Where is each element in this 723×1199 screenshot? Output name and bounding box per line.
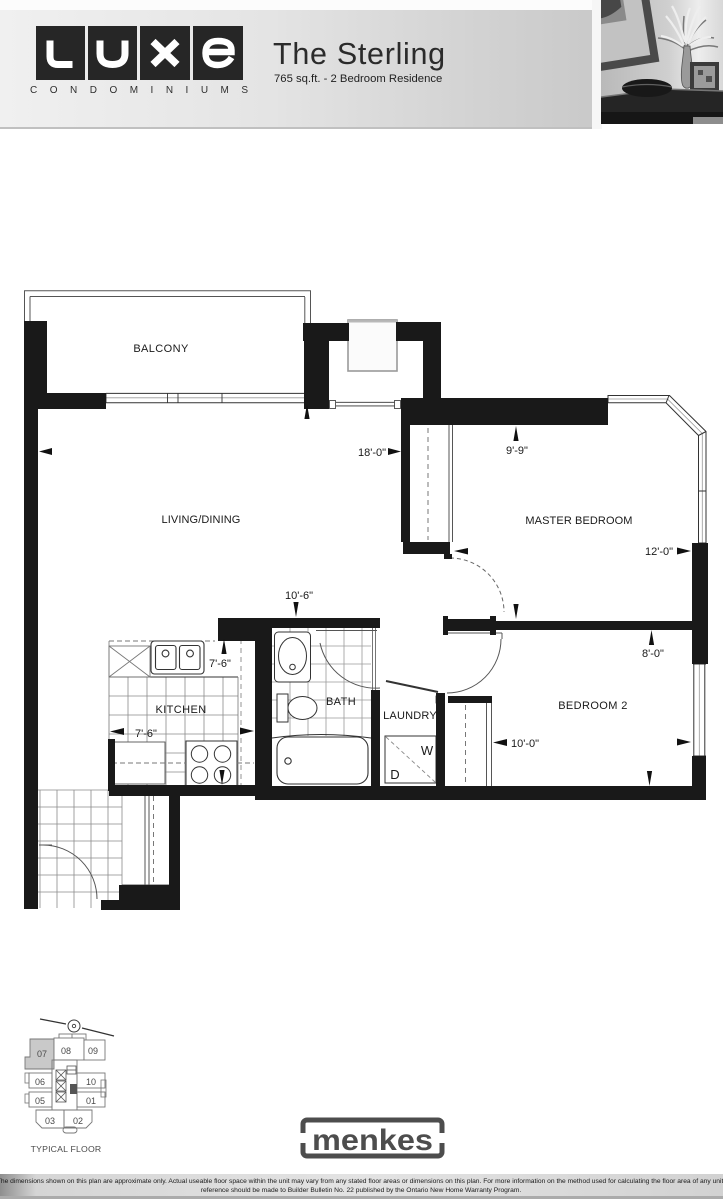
svg-text:06: 06: [35, 1077, 45, 1087]
svg-text:BALCONY: BALCONY: [133, 343, 189, 355]
svg-text:D: D: [390, 767, 399, 782]
svg-text:BATH: BATH: [326, 696, 356, 708]
svg-text:8'-0": 8'-0": [642, 648, 664, 660]
svg-text:9'-9": 9'-9": [506, 445, 528, 457]
svg-text:MASTER BEDROOM: MASTER BEDROOM: [525, 515, 632, 527]
svg-text:01: 01: [86, 1096, 96, 1106]
svg-text:TYPICAL FLOOR: TYPICAL FLOOR: [31, 1144, 102, 1154]
svg-text:KITCHEN: KITCHEN: [155, 704, 206, 716]
svg-text:The Sterling: The Sterling: [273, 37, 446, 71]
svg-text:LAUNDRY: LAUNDRY: [383, 710, 437, 722]
svg-text:The dimensions shown on this p: The dimensions shown on this plan are ap…: [0, 1178, 723, 1185]
svg-text:05: 05: [35, 1096, 45, 1106]
svg-text:08: 08: [61, 1046, 71, 1056]
svg-text:10'-6": 10'-6": [285, 590, 313, 602]
svg-text:765 sq.ft. - 2 Bedroom Residen: 765 sq.ft. - 2 Bedroom Residence: [274, 73, 442, 85]
svg-text:reference should be made to Bu: reference should be made to Builder Bull…: [201, 1187, 522, 1194]
svg-text:W: W: [421, 743, 434, 758]
svg-text:12'-0": 12'-0": [645, 546, 673, 558]
svg-text:10: 10: [86, 1077, 96, 1087]
svg-text:CONDOMINIUMS: CONDOMINIUMS: [30, 85, 261, 96]
svg-text:03: 03: [45, 1116, 55, 1126]
svg-text:09: 09: [88, 1046, 98, 1056]
svg-text:BEDROOM 2: BEDROOM 2: [558, 700, 628, 712]
svg-text:7'-6": 7'-6": [135, 728, 157, 740]
svg-text:02: 02: [73, 1116, 83, 1126]
svg-text:10'-0": 10'-0": [511, 738, 539, 750]
svg-text:LIVING/DINING: LIVING/DINING: [162, 514, 241, 526]
svg-text:menkes: menkes: [312, 1124, 433, 1157]
svg-text:7'-6": 7'-6": [209, 658, 231, 670]
svg-text:07: 07: [37, 1049, 47, 1059]
svg-text:18'-0": 18'-0": [358, 447, 386, 459]
